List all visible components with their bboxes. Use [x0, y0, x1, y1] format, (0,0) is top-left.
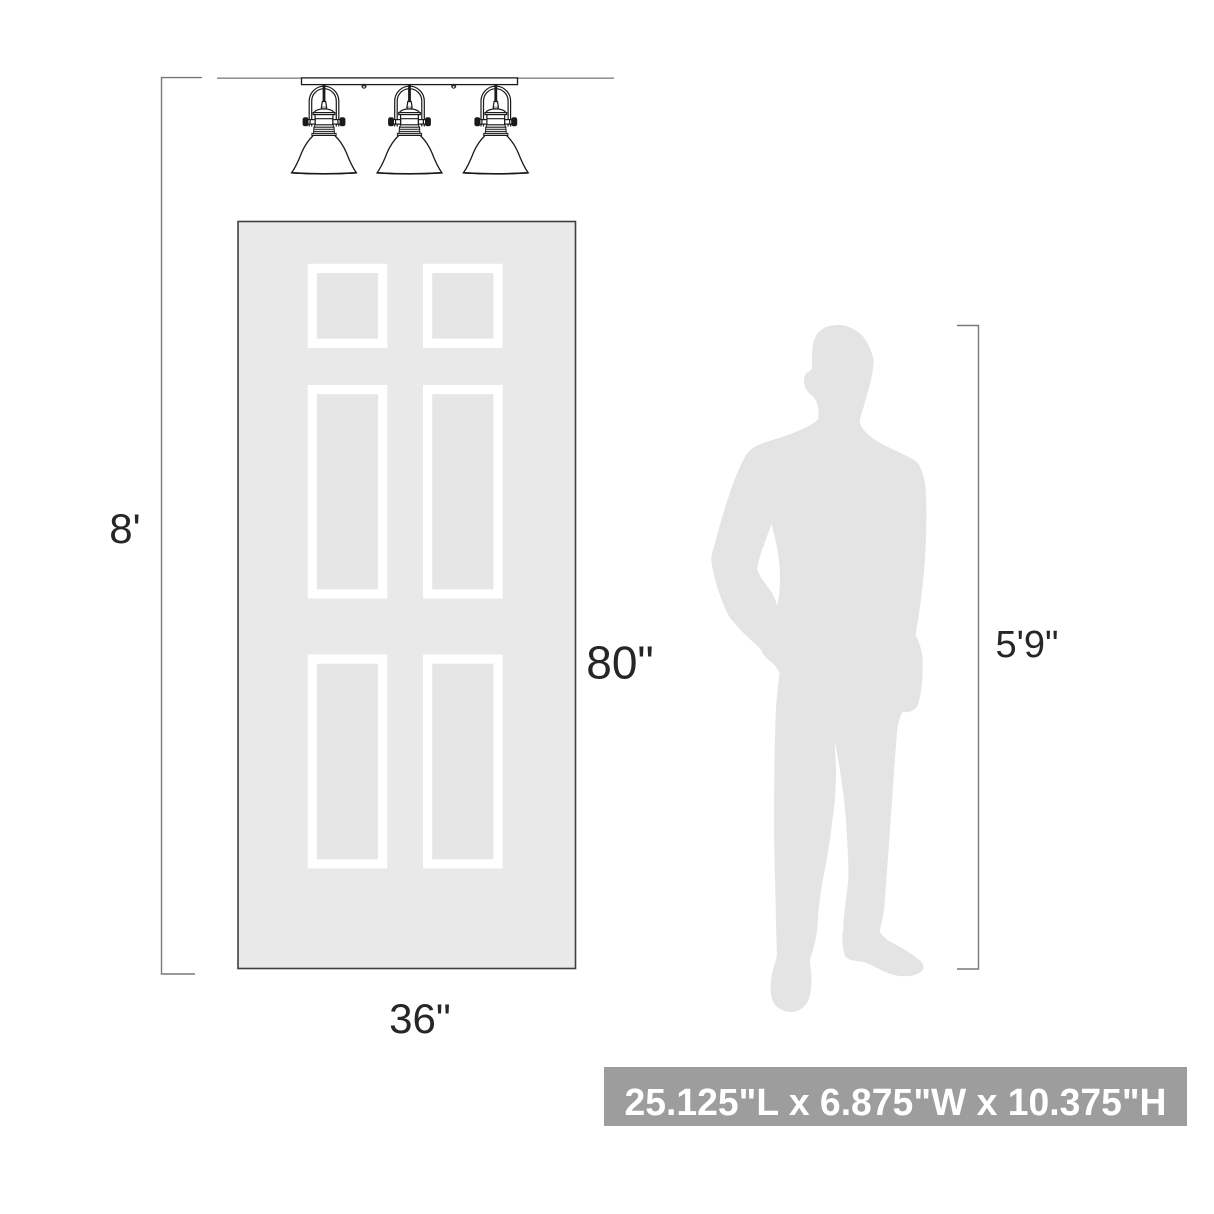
svg-text:8': 8' [109, 505, 140, 552]
svg-text:80": 80" [586, 637, 654, 689]
svg-text:25.125"L x 6.875"W x 10.375"H: 25.125"L x 6.875"W x 10.375"H [625, 1082, 1167, 1124]
svg-text:36": 36" [389, 995, 451, 1042]
svg-text:5'9": 5'9" [995, 624, 1058, 666]
